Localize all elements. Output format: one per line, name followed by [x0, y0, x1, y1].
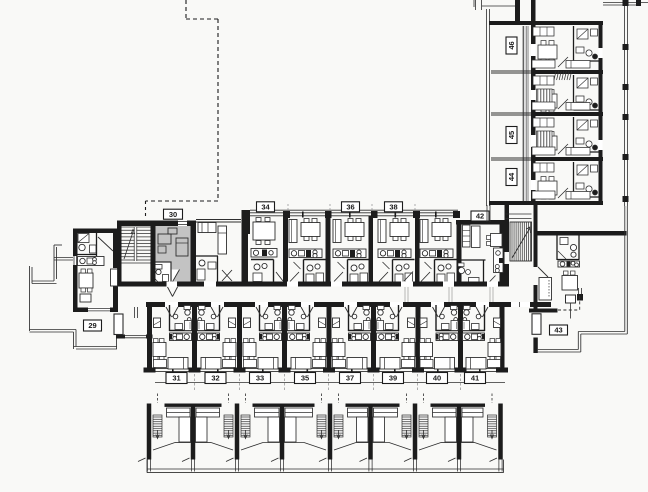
svg-text:37: 37: [346, 374, 354, 383]
svg-text:42: 42: [476, 212, 484, 221]
svg-text:29: 29: [88, 321, 96, 330]
svg-text:40: 40: [433, 374, 441, 383]
svg-text:36: 36: [346, 203, 354, 212]
svg-text:34: 34: [261, 203, 270, 212]
svg-text:32: 32: [211, 374, 219, 383]
svg-text:43: 43: [554, 326, 562, 335]
svg-text:46: 46: [507, 41, 516, 49]
svg-text:35: 35: [301, 374, 309, 383]
svg-text:44: 44: [507, 172, 516, 181]
svg-text:30: 30: [169, 210, 177, 219]
svg-text:39: 39: [389, 374, 397, 383]
svg-text:45: 45: [507, 131, 516, 139]
svg-text:41: 41: [471, 374, 479, 383]
svg-text:31: 31: [172, 374, 180, 383]
svg-text:33: 33: [256, 374, 264, 383]
svg-text:38: 38: [389, 203, 397, 212]
